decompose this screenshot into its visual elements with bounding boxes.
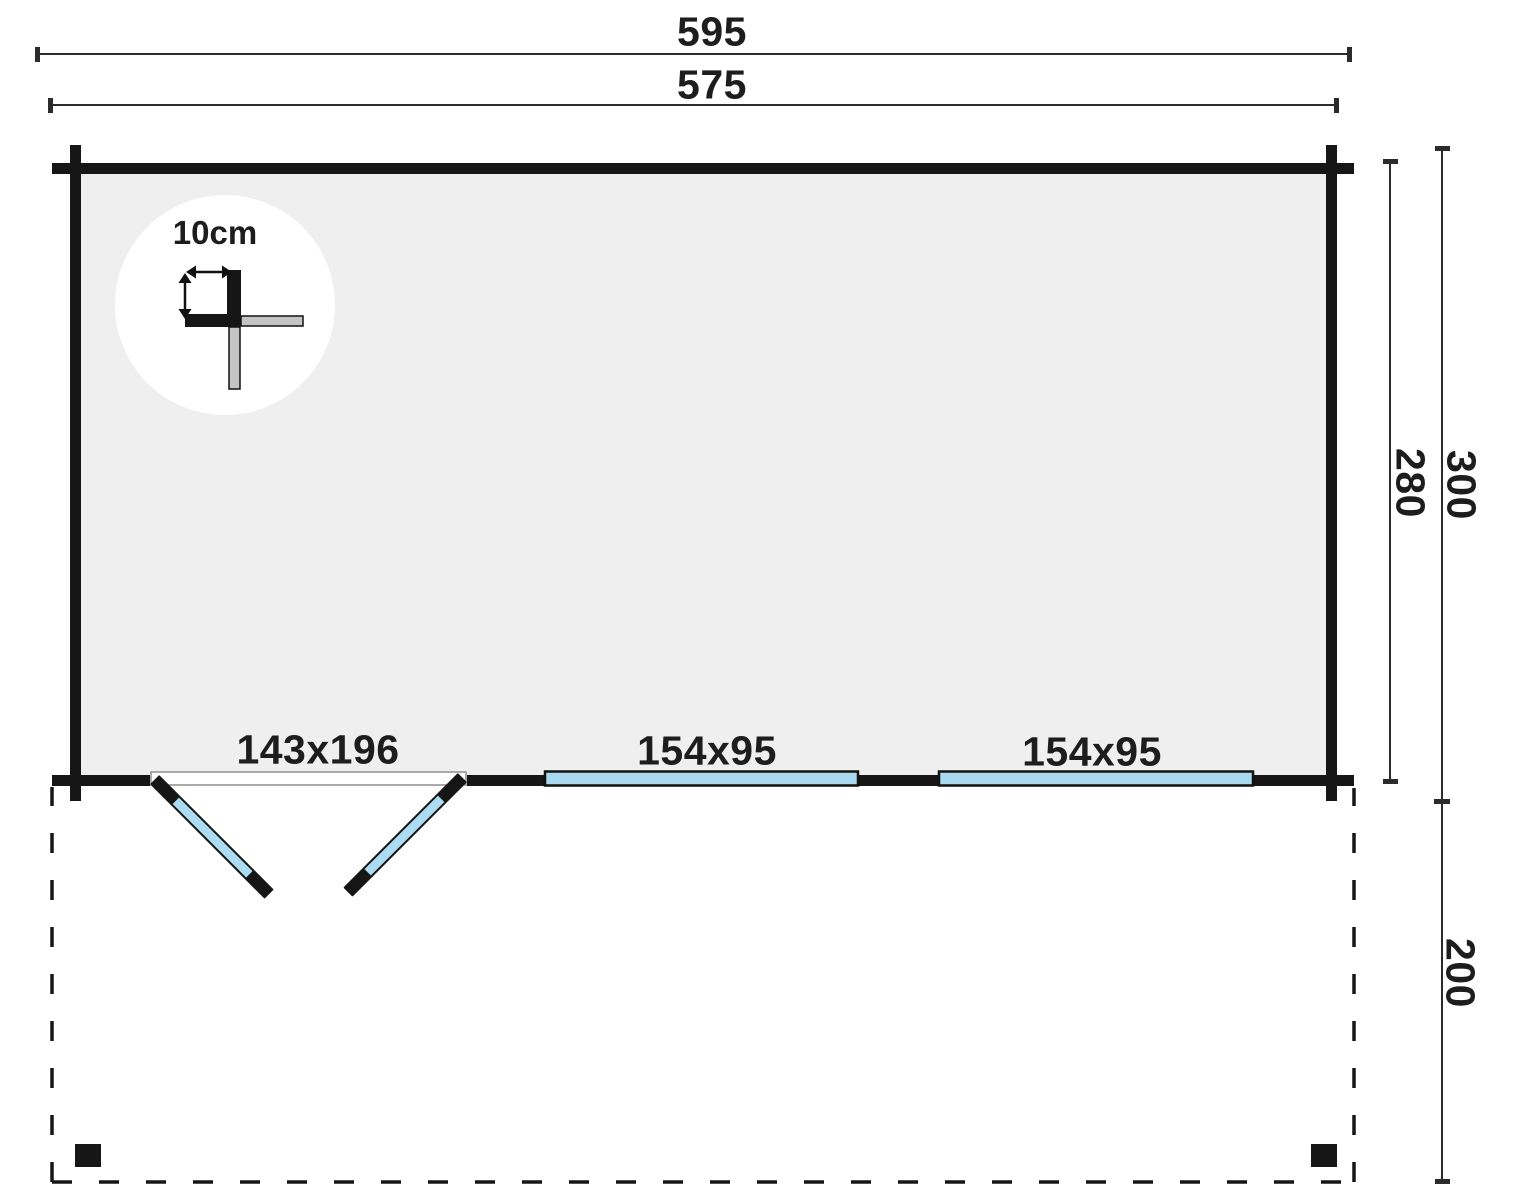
wall-left (70, 145, 81, 801)
label-log-thickness: 10cm (173, 214, 257, 252)
dim-tick (1435, 146, 1450, 151)
plan-drawing (0, 0, 1536, 1193)
dim-tick (1334, 98, 1339, 113)
label-overall-depth: 300 (1438, 450, 1485, 520)
door-leaf-right (343, 773, 467, 897)
dim-tick (35, 47, 40, 62)
label-window-right-size: 154x95 (1022, 729, 1162, 776)
terrace-post-left (75, 1144, 101, 1167)
label-overall-width: 595 (677, 9, 747, 56)
floor-plan-canvas: 595 575 10cm 143x196 154x95 154x95 280 3… (0, 0, 1536, 1193)
dim-tick (1435, 1179, 1450, 1184)
wall-bottom-left-segment (52, 775, 150, 786)
detail-wall-horizontal (185, 314, 241, 327)
label-door-size: 143x196 (236, 727, 399, 774)
wall-right (1326, 145, 1337, 801)
label-window-left-size: 154x95 (637, 728, 777, 775)
door-leaf-right-glass (364, 796, 444, 876)
door-leaf-left (150, 775, 274, 899)
door-leaf-left-glass (173, 798, 253, 878)
label-inner-depth: 280 (1387, 448, 1434, 518)
wall-top (52, 163, 1354, 174)
label-terrace-depth: 200 (1437, 938, 1484, 1008)
detail-log-end-vertical (229, 327, 240, 389)
label-wall-width: 575 (677, 62, 747, 109)
detail-log-end-horizontal (241, 316, 303, 326)
dim-tick (1434, 799, 1450, 804)
door-threshold (151, 772, 466, 785)
dim-tick (1347, 47, 1352, 62)
dim-tick (1383, 779, 1398, 784)
dim-tick (1383, 159, 1398, 164)
dim-tick (48, 98, 53, 113)
terrace-post-right (1311, 1144, 1337, 1167)
